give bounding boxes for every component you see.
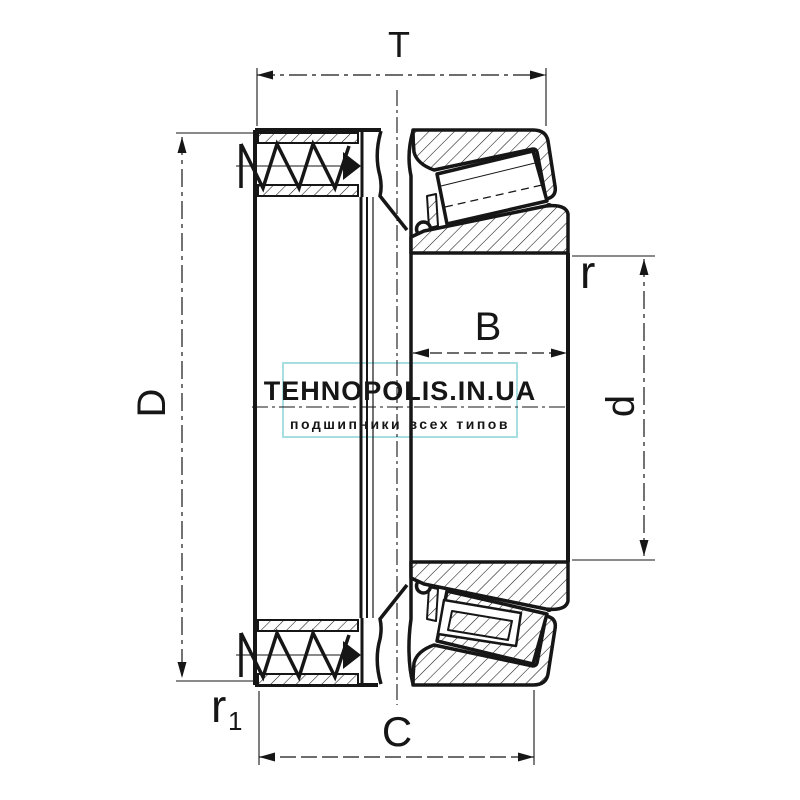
watermark: TEHNOPOLIS.IN.UA подшипники всех типов bbox=[264, 363, 537, 437]
slot-wall-and-bore-edge bbox=[409, 131, 413, 684]
arrowhead-right bbox=[518, 753, 534, 762]
dimension-B bbox=[413, 349, 567, 358]
thread-strip bbox=[258, 185, 358, 196]
slot-wall-bottom-left bbox=[377, 585, 407, 684]
thread-arrowhead bbox=[343, 641, 361, 669]
watermark-title: TEHNOPOLIS.IN.UA bbox=[264, 376, 537, 406]
bearing-drawing-page: TEHNOPOLIS.IN.UA подшипники всех типов bbox=[0, 0, 800, 800]
arrowhead-bottom bbox=[640, 540, 649, 556]
thread-strip bbox=[258, 620, 358, 631]
thread-strip bbox=[258, 133, 358, 143]
arrowhead-left bbox=[413, 349, 429, 358]
thread-arrowhead bbox=[343, 152, 361, 180]
arrowhead-right bbox=[530, 71, 546, 80]
arrowhead-bottom bbox=[178, 662, 187, 678]
dimension-label-r1: r 1 bbox=[211, 680, 242, 736]
arrowhead-top bbox=[178, 137, 187, 153]
arrowhead-left bbox=[257, 71, 273, 80]
slot-wall-top-left bbox=[377, 131, 407, 230]
dimension-D bbox=[176, 133, 253, 681]
dimension-label-r: r bbox=[580, 246, 595, 298]
arrowhead-right bbox=[551, 349, 567, 358]
bearing-technical-drawing: TEHNOPOLIS.IN.UA подшипники всех типов bbox=[0, 0, 800, 800]
r1-subscript: 1 bbox=[228, 706, 242, 736]
dimension-label-d: d bbox=[599, 395, 643, 417]
dimension-T bbox=[257, 68, 546, 126]
dimension-label-B: B bbox=[475, 305, 502, 349]
dimension-label-T: T bbox=[388, 24, 410, 65]
arrowhead-top bbox=[640, 259, 649, 275]
arrowhead-left bbox=[259, 753, 275, 762]
watermark-subtitle: подшипники всех типов bbox=[290, 416, 510, 432]
dimension-label-C: C bbox=[382, 708, 412, 755]
r1-base: r bbox=[211, 680, 226, 732]
thread-strip bbox=[258, 674, 358, 685]
dimension-label-D: D bbox=[130, 389, 174, 418]
